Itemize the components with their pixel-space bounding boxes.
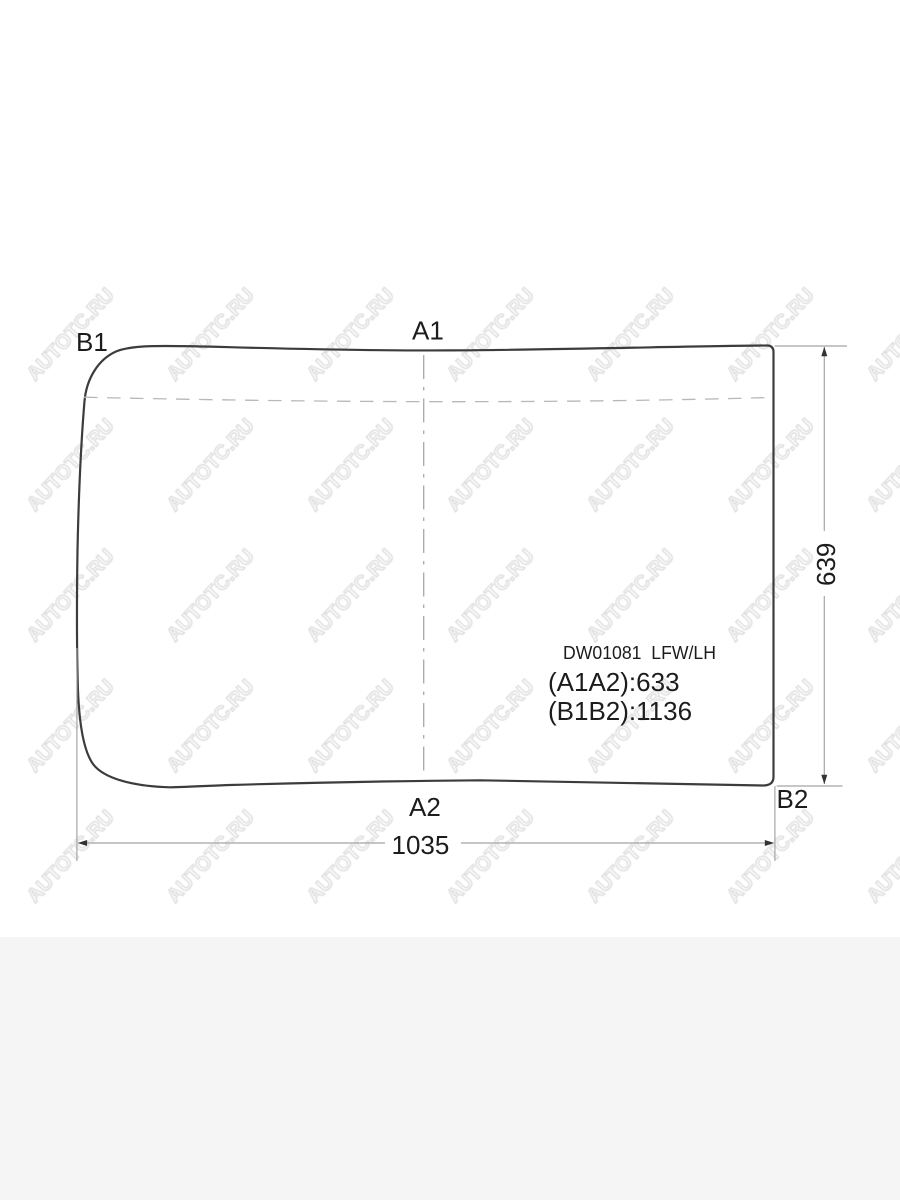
svg-text:AUTOTC.RU: AUTOTC.RU <box>583 284 679 385</box>
svg-text:B2: B2 <box>777 784 809 814</box>
svg-text:AUTOTC.RU: AUTOTC.RU <box>443 545 539 646</box>
svg-text:AUTOTC.RU: AUTOTC.RU <box>723 545 819 646</box>
svg-text:AUTOTC.RU: AUTOTC.RU <box>163 676 259 777</box>
svg-text:AUTOTC.RU: AUTOTC.RU <box>163 415 259 516</box>
svg-text:AUTOTC.RU: AUTOTC.RU <box>303 806 399 907</box>
svg-text:(A1A2):633: (A1A2):633 <box>548 667 680 697</box>
svg-text:AUTOTC.RU: AUTOTC.RU <box>303 284 399 385</box>
svg-text:B1: B1 <box>76 327 108 357</box>
svg-text:AUTOTC.RU: AUTOTC.RU <box>723 806 819 907</box>
svg-text:AUTOTC.RU: AUTOTC.RU <box>583 545 679 646</box>
svg-text:AUTOTC.RU: AUTOTC.RU <box>443 415 539 516</box>
svg-text:AUTOTC.RU: AUTOTC.RU <box>23 545 119 646</box>
svg-text:AUTOTC.RU: AUTOTC.RU <box>443 806 539 907</box>
svg-text:AUTOTC.RU: AUTOTC.RU <box>583 415 679 516</box>
svg-text:AUTOTC.RU: AUTOTC.RU <box>163 545 259 646</box>
svg-text:AUTOTC.RU: AUTOTC.RU <box>863 545 900 646</box>
svg-text:A1: A1 <box>412 316 444 346</box>
svg-text:AUTOTC.RU: AUTOTC.RU <box>23 806 119 907</box>
svg-text:AUTOTC.RU: AUTOTC.RU <box>443 284 539 385</box>
svg-text:AUTOTC.RU: AUTOTC.RU <box>163 806 259 907</box>
svg-text:1035: 1035 <box>392 830 450 860</box>
svg-text:AUTOTC.RU: AUTOTC.RU <box>303 676 399 777</box>
svg-text:AUTOTC.RU: AUTOTC.RU <box>723 284 819 385</box>
svg-text:AUTOTC.RU: AUTOTC.RU <box>863 284 900 385</box>
svg-text:AUTOTC.RU: AUTOTC.RU <box>583 806 679 907</box>
svg-text:AUTOTC.RU: AUTOTC.RU <box>723 676 819 777</box>
svg-text:AUTOTC.RU: AUTOTC.RU <box>863 806 900 907</box>
svg-text:AUTOTC.RU: AUTOTC.RU <box>23 415 119 516</box>
svg-text:AUTOTC.RU: AUTOTC.RU <box>863 415 900 516</box>
svg-text:(B1B2):1136: (B1B2):1136 <box>548 696 692 726</box>
svg-text:DW01081 LFW/LH: DW01081 LFW/LH <box>563 643 716 663</box>
svg-text:AUTOTC.RU: AUTOTC.RU <box>303 415 399 516</box>
svg-text:AUTOTC.RU: AUTOTC.RU <box>163 284 259 385</box>
svg-text:AUTOTC.RU: AUTOTC.RU <box>303 545 399 646</box>
svg-text:639: 639 <box>811 543 841 586</box>
svg-text:A2: A2 <box>409 792 441 822</box>
svg-text:AUTOTC.RU: AUTOTC.RU <box>443 676 539 777</box>
svg-text:AUTOTC.RU: AUTOTC.RU <box>23 676 119 777</box>
svg-text:AUTOTC.RU: AUTOTC.RU <box>863 676 900 777</box>
svg-text:AUTOTC.RU: AUTOTC.RU <box>723 415 819 516</box>
